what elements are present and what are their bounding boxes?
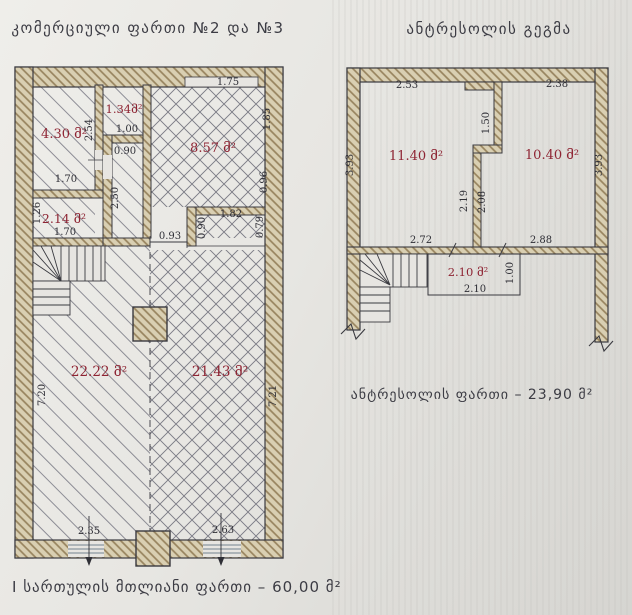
dim-2-50: 2.50	[110, 187, 121, 209]
wall-room430-right	[95, 85, 103, 198]
dim-7-21: 7.21	[268, 385, 279, 407]
dim-0-93: 0.93	[159, 231, 181, 242]
dim-0-79: 0.79	[255, 216, 266, 238]
wall-left	[15, 67, 33, 558]
dim-2-54: 2.54	[84, 119, 95, 141]
room-2-14-label: 2.14 მ²	[42, 211, 86, 226]
stairs-right-plan	[360, 254, 427, 322]
dim-2-63: 2.63	[212, 525, 234, 536]
mezz-divider-jog	[473, 145, 502, 153]
room-21-43-area	[150, 250, 265, 540]
dim-1-00-mezz: 1.00	[505, 262, 516, 284]
column-middle	[133, 307, 167, 341]
dim-2-88: 2.88	[530, 235, 552, 246]
room-1-34-label: 1.34მ²	[106, 102, 143, 116]
scanned-floorplan-page: კომერციული ფართი №2 და №3 ანტრესოლის გეგ…	[0, 0, 632, 615]
wall-hall-left	[103, 238, 150, 246]
title-right-plan: ანტრესოლის გეგმა	[406, 20, 571, 38]
room-21-43-label: 21.43 მ²	[192, 364, 248, 380]
mezzanine-total-caption: ანტრესოლის ფართი – 23,90 მ²	[351, 386, 594, 403]
dim-2-72: 2.72	[410, 235, 432, 246]
dim-1-75: 1.75	[217, 77, 239, 88]
dim-7-20: 7.20	[37, 384, 48, 406]
wall-corridor-right	[143, 85, 151, 238]
room-8-57-label: 8.57 მ²	[190, 141, 236, 156]
floorplan-drawing: კომერციული ფართი №2 და №3 ანტრესოლის გეგ…	[0, 0, 632, 615]
door-opening-corridor	[103, 155, 112, 179]
window-right	[203, 541, 241, 557]
dim-1-85: 1.85	[262, 108, 273, 130]
dim-2-53: 2.53	[396, 80, 418, 91]
dim-0-90-b: 0.90	[197, 217, 208, 239]
column-bottom	[136, 531, 170, 566]
dim-1-00: 1.00	[116, 124, 138, 135]
dim-1-70-a: 1.70	[55, 174, 77, 185]
room-22-22-label: 22.22 მ²	[71, 364, 127, 380]
wall-right	[265, 67, 283, 558]
wall-room430-bottom	[33, 190, 103, 198]
mezz-wall-top	[347, 68, 608, 82]
mezz-wall-left	[347, 68, 360, 330]
first-floor-total-caption: I სართულის მთლიანი ფართი – 60,00 მ²	[12, 578, 342, 596]
dim-1-26: 1.26	[32, 202, 43, 224]
dim-2-19: 2.19	[459, 190, 470, 212]
right-plan: 11.40 მ² 10.40 მ² 2.10 მ² 2.53 2.38 3.93…	[341, 68, 613, 403]
wall-niche-left	[187, 207, 196, 246]
title-left-plan: კომერციული ფართი №2 და №3	[11, 19, 284, 37]
dim-3-93-left: 3.93	[345, 154, 356, 176]
left-plan: 4.30 მ² 1.34მ² 2.14 მ² 8.57 მ² 22.22 მ² …	[15, 67, 283, 566]
dim-2-38: 2.38	[546, 79, 568, 90]
dim-1-82: 1.82	[220, 209, 242, 220]
dim-2-08: 2.08	[477, 191, 488, 213]
room-11-40-label: 11.40 მ²	[389, 149, 443, 164]
room-2-10-label: 2.10 მ²	[448, 265, 489, 279]
dim-2-35: 2.35	[78, 526, 100, 537]
room-4-30-label: 4.30 მ²	[41, 127, 87, 142]
mezz-divider-upper	[494, 82, 502, 145]
dim-0-96: 0.96	[259, 171, 270, 193]
dim-3-93-right: 3.93	[594, 154, 605, 176]
room-10-40-label: 10.40 მ²	[525, 148, 579, 163]
dim-1-50: 1.50	[481, 112, 492, 134]
wall-room214-bottom	[33, 238, 105, 246]
mezz-wall-horizontal	[347, 247, 608, 254]
mezz-wall-right	[595, 68, 608, 342]
dim-0-90-a: 0.90	[114, 146, 136, 157]
window-left	[68, 541, 104, 557]
dim-1-70-b: 1.70	[54, 227, 76, 238]
dim-2-10: 2.10	[464, 284, 486, 295]
